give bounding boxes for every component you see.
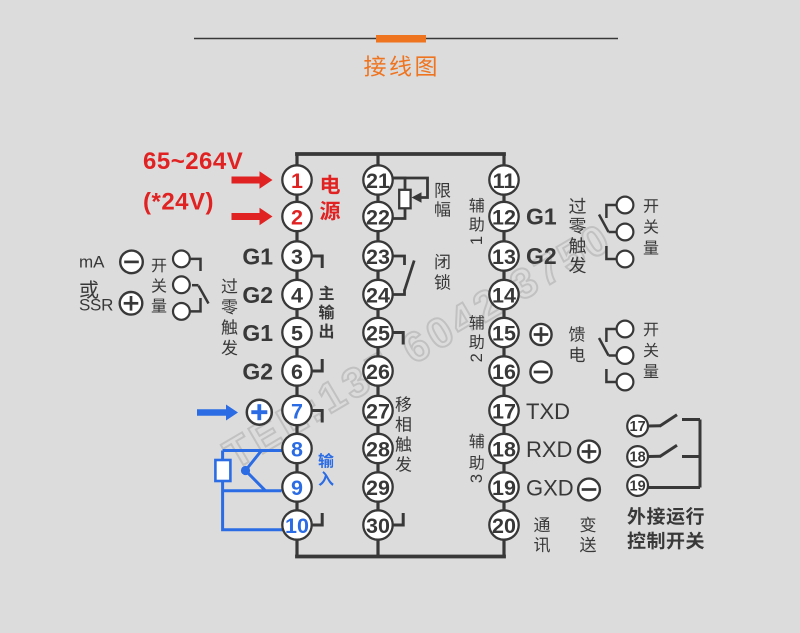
svg-text:G2: G2 [526, 243, 557, 269]
svg-text:28: 28 [366, 438, 390, 462]
svg-text:4: 4 [291, 284, 303, 308]
svg-text:5: 5 [291, 322, 303, 346]
svg-text:13: 13 [492, 245, 516, 269]
svg-text:TXD: TXD [526, 399, 570, 424]
svg-text:11: 11 [493, 169, 516, 193]
svg-text:1: 1 [291, 169, 303, 193]
svg-text:2: 2 [468, 353, 486, 362]
svg-text:10: 10 [285, 514, 309, 538]
svg-text:18: 18 [630, 449, 646, 465]
svg-text:27: 27 [366, 400, 390, 424]
svg-text:G1: G1 [242, 320, 273, 346]
svg-text:25: 25 [366, 322, 390, 346]
svg-text:20: 20 [492, 514, 516, 538]
svg-text:mA: mA [79, 253, 105, 272]
svg-text:3: 3 [291, 245, 303, 269]
svg-text:8: 8 [291, 438, 303, 462]
svg-text:21: 21 [366, 169, 390, 193]
svg-text:15: 15 [492, 322, 516, 346]
svg-text:G1: G1 [526, 204, 557, 230]
svg-text:18: 18 [492, 438, 516, 462]
svg-text:22: 22 [366, 206, 390, 230]
svg-text:24: 24 [366, 284, 390, 308]
svg-text:23: 23 [366, 245, 390, 269]
svg-text:14: 14 [492, 284, 516, 308]
svg-text:65~264V: 65~264V [143, 148, 243, 175]
svg-text:RXD: RXD [526, 437, 572, 462]
svg-text:9: 9 [291, 476, 303, 500]
svg-text:17: 17 [630, 419, 646, 435]
svg-text:7: 7 [291, 400, 303, 424]
svg-text:2: 2 [291, 206, 303, 230]
svg-text:GXD: GXD [526, 476, 574, 501]
svg-text:16: 16 [492, 360, 516, 384]
svg-text:3: 3 [468, 474, 486, 483]
svg-text:(*24V): (*24V) [143, 188, 214, 215]
svg-text:G2: G2 [242, 282, 273, 308]
svg-text:19: 19 [630, 478, 646, 494]
svg-text:G2: G2 [242, 359, 273, 385]
svg-text:1: 1 [468, 236, 486, 245]
svg-text:17: 17 [492, 400, 516, 424]
svg-text:SSR: SSR [79, 296, 113, 315]
svg-text:29: 29 [366, 476, 390, 500]
svg-text:26: 26 [366, 360, 390, 384]
svg-text:12: 12 [492, 206, 516, 230]
svg-text:G1: G1 [242, 244, 273, 270]
svg-text:6: 6 [291, 360, 303, 384]
svg-text:19: 19 [492, 476, 516, 500]
svg-text:30: 30 [366, 514, 390, 538]
